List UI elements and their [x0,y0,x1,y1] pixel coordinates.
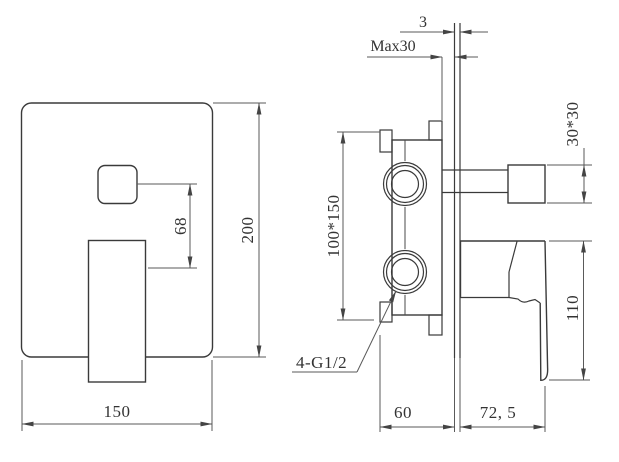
dim-100x150-label: 100*150 [324,195,343,258]
thread-callout-label: 4-G1/2 [296,353,347,372]
dim-3-label: 3 [419,14,427,31]
dimension-100x150: 100*150 [324,132,380,320]
dimension-30x30: 30*30 [547,102,592,204]
lower-port-outer-circle [384,251,427,294]
dim-200-label: 200 [238,217,257,244]
handle-detent-bump [509,298,540,304]
dim-max30-label: Max30 [370,38,415,55]
dimension-max30: Max30 [367,38,478,120]
mounting-ear-bottom-right [429,315,442,335]
mounting-ear-top-left [380,130,392,152]
upper-port-outer-circle [384,163,427,206]
dim-30x30-label: 30*30 [563,102,582,147]
technical-drawing-page: 68 200 150 [0,0,619,462]
side-view: 3 Max30 100*150 30*30 [292,14,592,432]
handle-base-top-edge [461,241,546,298]
dimension-110: 110 [549,241,592,380]
lower-port-inner-circle [392,259,419,286]
lever-handle-side [461,241,548,380]
lower-port-circles [384,251,427,294]
mixer-installation-drawing: 68 200 150 [0,0,619,462]
dim-68-label: 68 [171,217,190,235]
dimension-200: 200 [213,103,266,357]
front-handle-body [89,241,146,383]
upper-port-circles [384,163,427,206]
diverter-button-square [98,166,137,204]
dimension-72-5: 72, 5 [460,386,545,432]
dim-60-label: 60 [394,403,412,422]
dimension-60: 60 [380,335,455,432]
upper-port-inner-circle [392,171,419,198]
diverter-knob-side [508,165,545,203]
dim-150-label: 150 [104,402,131,421]
mounting-ear-top-right [429,121,442,140]
front-view: 68 200 150 [22,103,267,431]
lever-arm-outline [540,241,547,380]
dimension-3: 3 [400,14,488,32]
handle-neck-diagonal [509,242,517,273]
dim-72-5-label: 72, 5 [480,403,517,422]
dim-110-label: 110 [563,295,582,321]
thread-callout-leader [357,291,396,372]
